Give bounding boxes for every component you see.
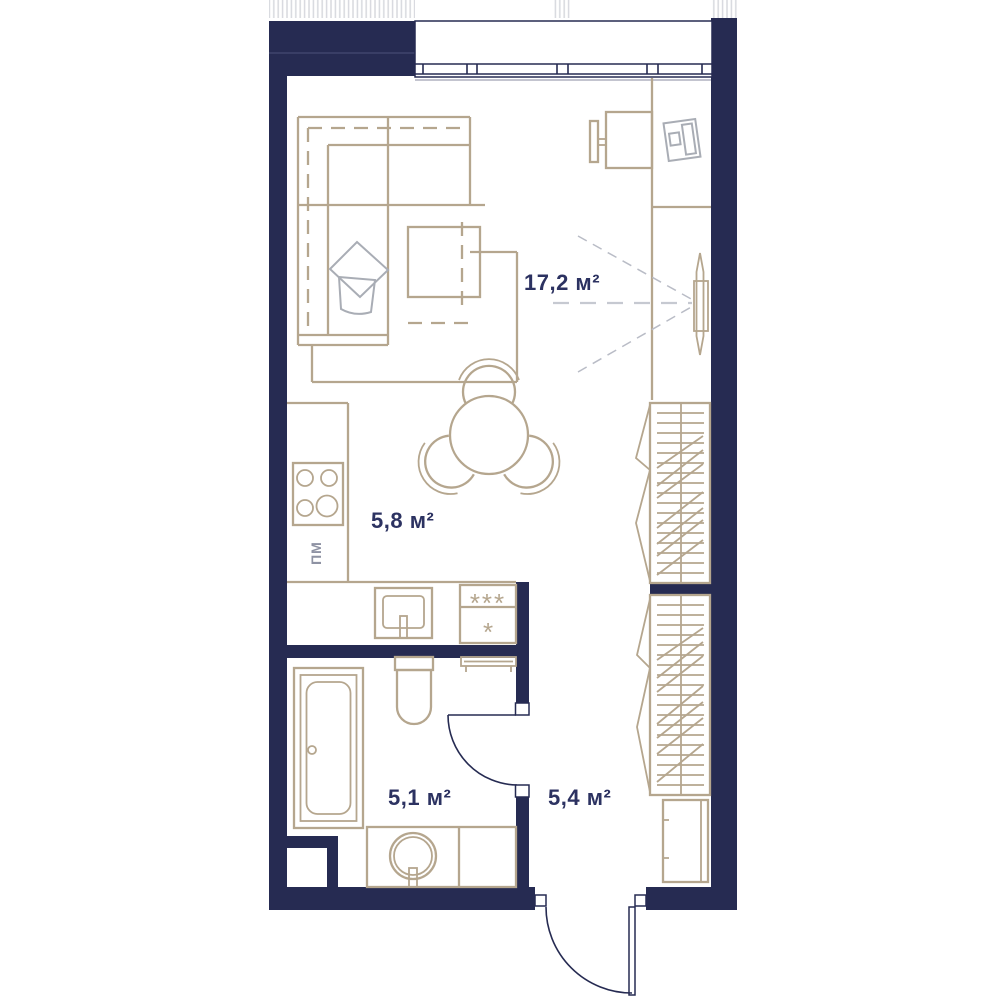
facade-hatch — [269, 0, 737, 18]
bathroom-door — [448, 703, 529, 797]
workspace — [590, 78, 711, 400]
kitchen-area-label: 5,8 м² — [371, 508, 434, 533]
tv — [694, 253, 708, 355]
rug-outline — [312, 252, 517, 382]
sofa — [298, 117, 485, 345]
freezer-symbol: *** — [470, 588, 506, 618]
dining-table — [450, 396, 528, 474]
dishwasher-label: ПМ — [308, 541, 324, 565]
hallway-area-label: 5,4 м² — [548, 785, 611, 810]
fridge-symbol: * — [483, 617, 495, 647]
entrance-door — [535, 895, 646, 995]
desk-chair — [590, 112, 652, 168]
floor-plan-drawing: ПМ *** * — [0, 0, 1000, 1000]
vanity-sink — [367, 827, 516, 887]
kitchen-sink — [375, 588, 432, 638]
toilet — [395, 657, 433, 724]
tv-zone — [553, 236, 708, 372]
window-band — [415, 21, 712, 80]
bathtub — [294, 668, 363, 828]
pillows — [330, 242, 388, 314]
fridge: *** * — [460, 585, 516, 647]
wardrobe-upper — [636, 403, 710, 583]
wardrobe-lower — [637, 595, 710, 795]
side-table — [408, 227, 480, 297]
stove — [293, 463, 343, 525]
towel-radiator — [461, 657, 516, 672]
bathroom-area-label: 5,1 м² — [388, 785, 451, 810]
shoe-cabinet — [663, 800, 708, 882]
laptop — [664, 119, 701, 161]
living-room-area-label: 17,2 м² — [524, 270, 600, 295]
floor-plan-canvas: ПМ *** * — [0, 0, 1000, 1000]
